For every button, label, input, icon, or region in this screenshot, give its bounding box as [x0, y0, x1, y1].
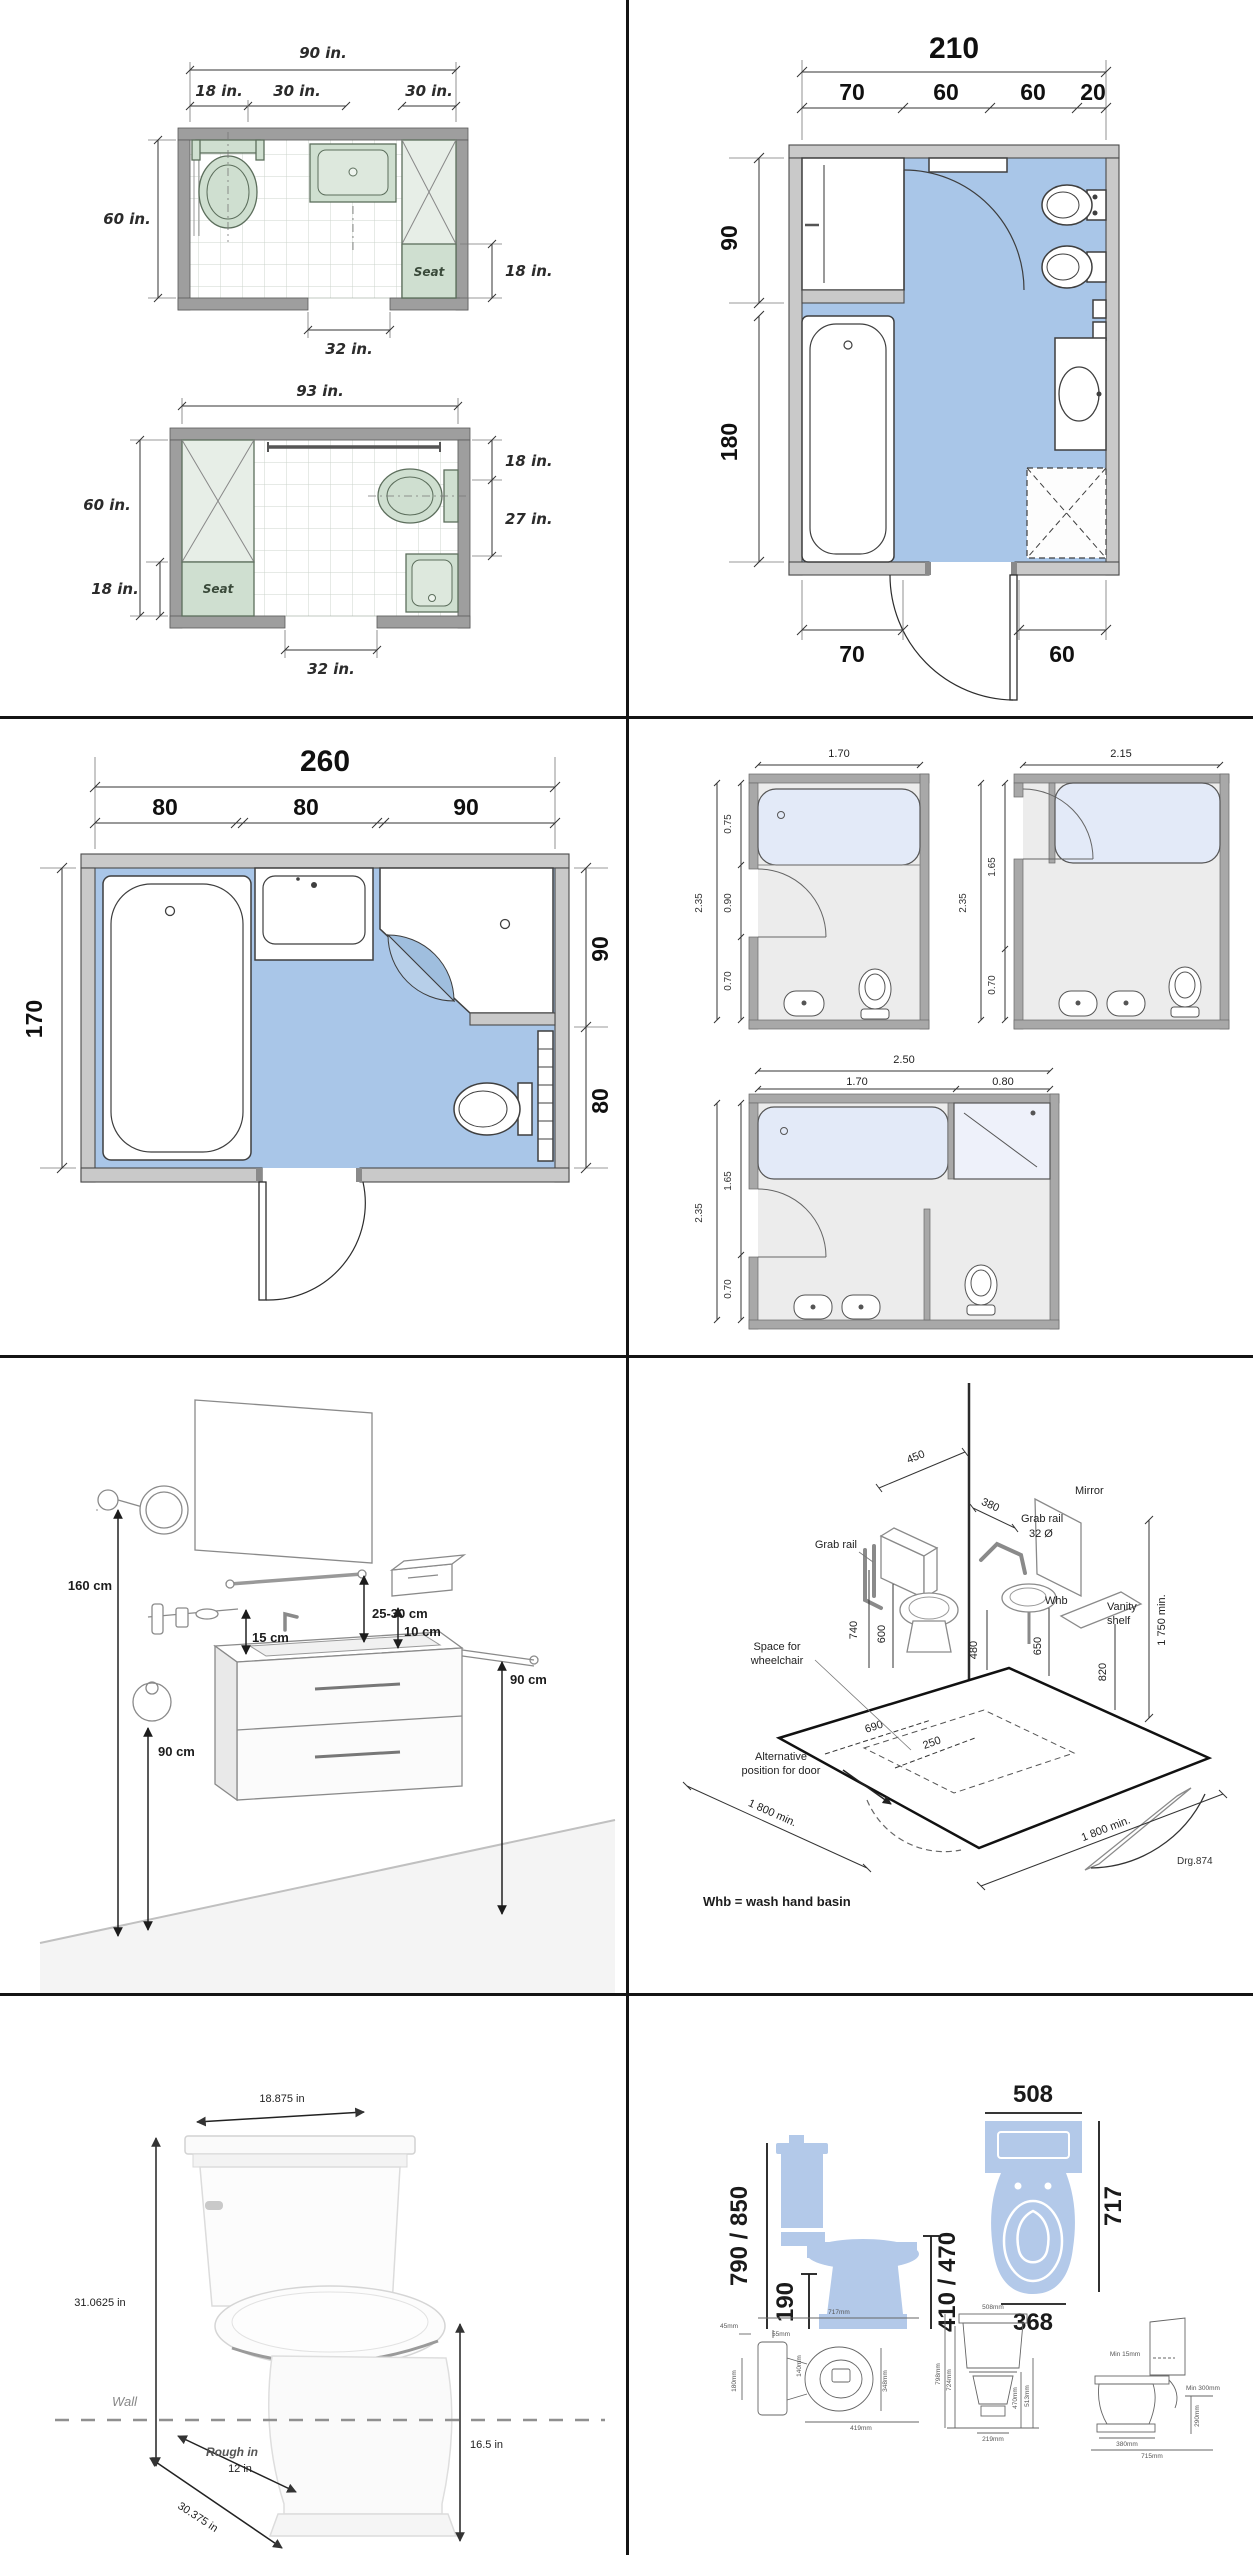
shower: Seat [402, 140, 456, 298]
wall-bottom-left [178, 298, 308, 310]
washbasin [1002, 1584, 1056, 1644]
dim-0-80: 0.80 [992, 1076, 1013, 1088]
dim-2-35-c: 2.35 [694, 1203, 705, 1223]
toilet [859, 969, 891, 1019]
toilet [454, 1083, 532, 1135]
footnote-whb: Whb = wash hand basin [703, 1894, 851, 1909]
floor-outline [779, 1668, 1209, 1848]
dim-90-right: 90 [587, 936, 613, 962]
towel-radiator [538, 1031, 553, 1161]
label-mirror: Mirror [1075, 1485, 1104, 1497]
wall-bottom-right [390, 298, 468, 310]
bathtub [758, 789, 920, 865]
svg-text:90 cm: 90 cm [510, 1672, 547, 1687]
bidet [1042, 185, 1106, 225]
grab-rail-left [865, 1546, 881, 1608]
partition-wall [470, 1013, 555, 1025]
small-plan-250: 2.50 1.70 0.80 2.35 1.65 0.70 [694, 1054, 1059, 1329]
dim-450: 450 [905, 1448, 927, 1466]
bathtub [103, 876, 251, 1160]
dim-2-15: 2.15 [1110, 748, 1131, 760]
bathroom-planning-collage: Seat 90 in. 18 in. 30 in. 30 in. 60 in. [0, 0, 1253, 2555]
svg-text:45mm: 45mm [720, 2323, 738, 2330]
svg-text:513mm: 513mm [1024, 2385, 1031, 2407]
label-grab-rail-top: Grab rail [1021, 1513, 1063, 1525]
accessories [148, 1604, 238, 1634]
entry-door [259, 1182, 365, 1300]
panel-toilet-photo: 18.875 in 31.0625 in Wall Rough in 12 in… [0, 1996, 627, 2555]
faucet [285, 1614, 297, 1630]
washing-machine [1027, 468, 1106, 558]
dim-160cm: 160 cm [68, 1510, 118, 1936]
dim-27in: 27 in. [505, 510, 553, 528]
svg-text:Min 15mm: Min 15mm [1110, 2351, 1140, 2358]
label-grab-rail-left: Grab rail [815, 1539, 857, 1551]
svg-text:715mm: 715mm [1141, 2453, 1163, 2460]
svg-text:219mm: 219mm [982, 2436, 1004, 2443]
label-vanity-shelf-1: Vanity [1107, 1601, 1137, 1613]
dim-2-35: 2.35 [694, 893, 705, 913]
dim-60in-b: 60 in. [83, 496, 131, 514]
dim-seat-height: 16.5 in [470, 2439, 503, 2451]
dim-18in-left: 18 in. [91, 580, 139, 598]
glass-shelf [226, 1570, 366, 1588]
panel-toilet-mm: 790 / 850 190 410 / 470 508 717 368 [629, 1996, 1253, 2555]
dim-20: 20 [1080, 79, 1106, 105]
dim-1750: 1 750 min. [1156, 1594, 1168, 1645]
svg-text:160 cm: 160 cm [68, 1578, 112, 1593]
vanity-cabinet [215, 1632, 462, 1800]
dim-width: 18.875 in [259, 2093, 304, 2105]
svg-text:55mm: 55mm [772, 2331, 790, 2338]
label-alt-door-1: Alternative [755, 1751, 807, 1763]
dim-60b: 60 [1020, 79, 1046, 105]
shower [954, 1103, 1050, 1179]
dim-70-bottom: 70 [839, 641, 865, 667]
drawing-ref: Drg.874 [1177, 1856, 1213, 1867]
wall-right [456, 140, 468, 310]
svg-text:380mm: 380mm [1116, 2441, 1138, 2448]
label-rough-in: Rough in [206, 2445, 258, 2459]
svg-text:717mm: 717mm [828, 2309, 850, 2316]
dim-93in: 93 in. [296, 382, 344, 400]
svg-text:290mm: 290mm [1194, 2405, 1201, 2427]
dim-80b: 80 [293, 794, 319, 820]
dim-2-35-b: 2.35 [958, 893, 969, 913]
shower: Seat [182, 440, 254, 616]
floor [40, 1820, 615, 1993]
label-wall: Wall [112, 2394, 138, 2409]
dim-32in-b: 32 in. [307, 660, 355, 678]
dim-18in-seat: 18 in. [505, 262, 553, 280]
dim-70: 70 [839, 79, 865, 105]
sink [406, 554, 458, 612]
dim-height: 31.0625 in [74, 2297, 125, 2309]
dim-820: 820 [1097, 1663, 1109, 1681]
svg-text:Min 300mm: Min 300mm [1186, 2385, 1220, 2392]
label-32-dia: 32 Ø [1029, 1528, 1053, 1540]
svg-text:508mm: 508mm [982, 2304, 1004, 2311]
dim-717: 717 [1100, 2186, 1127, 2226]
bathtub [1055, 783, 1220, 863]
shower-seat-label: Seat [414, 265, 446, 279]
dim-rough-12: 12 in [228, 2463, 252, 2475]
wall-top [178, 128, 468, 140]
svg-text:10 cm: 10 cm [404, 1624, 441, 1639]
svg-text:798mm: 798mm [935, 2363, 942, 2385]
dim-90cm-ring: 90 cm [148, 1728, 195, 1930]
dim-260: 260 [300, 745, 350, 778]
toilet [1042, 246, 1106, 288]
dim-60in: 60 in. [103, 210, 151, 228]
dim-1-70: 1.70 [828, 748, 849, 760]
floor-plan-93in: Seat 93 in. [83, 382, 552, 678]
svg-text:470mm: 470mm [1012, 2387, 1019, 2409]
dim-18in-right: 18 in. [505, 452, 553, 470]
dim-1-65: 1.65 [987, 857, 998, 877]
dim-30in-a: 30 in. [273, 82, 321, 100]
label-wheelchair-1: Space for [753, 1641, 800, 1653]
dim-0-90: 0.90 [723, 893, 734, 913]
svg-text:15 cm: 15 cm [252, 1630, 289, 1645]
dim-410-470: 410 / 470 [934, 2232, 961, 2332]
cistern [881, 1528, 937, 1598]
dim-600: 600 [876, 1625, 888, 1643]
dim-90in: 90 in. [299, 44, 347, 62]
small-plan-215: 2.15 2.35 1.65 0.70 [958, 748, 1229, 1029]
svg-text:25-30 cm: 25-30 cm [372, 1606, 428, 1621]
toilet-top-silhouette [985, 2121, 1082, 2294]
panel-inch-plans: Seat 90 in. 18 in. 30 in. 30 in. 60 in. [0, 0, 627, 716]
dim-368: 368 [1013, 2309, 1053, 2336]
floor-plan-90in: Seat 90 in. 18 in. 30 in. 30 in. 60 in. [103, 44, 552, 358]
bathtub [802, 316, 894, 562]
dim-480: 480 [968, 1641, 980, 1659]
shower-seat-label: Seat [203, 582, 235, 596]
dim-depth: 30.375 in [175, 2500, 219, 2535]
dim-80a: 80 [152, 794, 178, 820]
tech-drawing-side: Min 15mm Min 300mm 290mm 380mm 715mm [1091, 2318, 1220, 2460]
magnifying-mirror [98, 1486, 188, 1534]
toilet [965, 1265, 997, 1315]
dim-210: 210 [929, 32, 979, 65]
dim-90r: 90 [453, 794, 479, 820]
dim-0-70: 0.70 [723, 971, 734, 991]
dim-190: 190 [772, 2282, 799, 2322]
svg-text:90 cm: 90 cm [158, 1744, 195, 1759]
sink [255, 868, 373, 960]
dim-1-65-b: 1.65 [723, 1171, 734, 1191]
small-plan-170: 1.70 2.35 0.75 0.90 0.70 [694, 748, 929, 1029]
bathtub [758, 1107, 948, 1179]
entry-door [890, 575, 1017, 700]
label-wheelchair-2: wheelchair [750, 1655, 804, 1667]
svg-text:348mm: 348mm [882, 2370, 889, 2392]
dim-1-70-b: 1.70 [846, 1076, 867, 1088]
dim-0-75: 0.75 [723, 814, 734, 834]
dim-32in: 32 in. [325, 340, 373, 358]
dim-170: 170 [21, 1000, 47, 1038]
dim-80-right: 80 [587, 1088, 613, 1114]
mirror [195, 1400, 372, 1563]
dim-508: 508 [1013, 2081, 1053, 2108]
panel-accessible-wc: 450 380 Grab rail 32 Ø Mirror Grab rail … [629, 1358, 1253, 1993]
dim-650: 650 [1032, 1637, 1044, 1655]
svg-text:724mm: 724mm [946, 2369, 953, 2391]
tissue-box [392, 1555, 464, 1596]
label-whb: Whb [1045, 1595, 1068, 1607]
dim-790-850: 790 / 850 [726, 2186, 753, 2286]
label-vanity-shelf-2: shelf [1107, 1615, 1131, 1627]
dim-0-70-c: 0.70 [723, 1279, 734, 1299]
towel-ring [133, 1682, 171, 1721]
dim-30in-b: 30 in. [405, 82, 453, 100]
dim-380: 380 [979, 1496, 1001, 1514]
shelf [929, 158, 1007, 172]
toilet-image [185, 2136, 456, 2536]
dim-0-70-b: 0.70 [987, 975, 998, 995]
dims: 450 380 Grab rail 32 Ø Mirror Grab rail … [683, 1448, 1227, 1909]
toilet [900, 1593, 958, 1652]
svg-text:140mm: 140mm [796, 2355, 803, 2377]
dim-180: 180 [716, 423, 742, 461]
dim-90: 90 [716, 225, 742, 251]
panel-plan-210: 210 70 60 60 20 90 180 70 60 [629, 0, 1253, 716]
toilet [1169, 967, 1201, 1017]
flush-lever [205, 2201, 223, 2210]
svg-text:180mm: 180mm [731, 2370, 738, 2392]
dim-60-bottom: 60 [1049, 641, 1075, 667]
washbasin [1055, 338, 1106, 450]
panel-small-plans: 1.70 2.35 0.75 0.90 0.70 [629, 719, 1253, 1355]
grab-rail-basin [981, 1544, 1025, 1573]
dim-740: 740 [848, 1621, 860, 1639]
label-alt-door-2: position for door [742, 1765, 821, 1777]
svg-text:419mm: 419mm [850, 2425, 872, 2432]
dim-2-50: 2.50 [893, 1054, 914, 1066]
panel-vanity-heights: 160 cm 25-30 cm 15 cm 10 cm 90 cm 90 cm [0, 1358, 627, 1993]
wall-left [178, 140, 190, 310]
partition [924, 1209, 930, 1320]
dim-18in: 18 in. [195, 82, 243, 100]
panel-plan-260: 260 80 80 90 170 90 80 [0, 719, 627, 1355]
dim-60a: 60 [933, 79, 959, 105]
